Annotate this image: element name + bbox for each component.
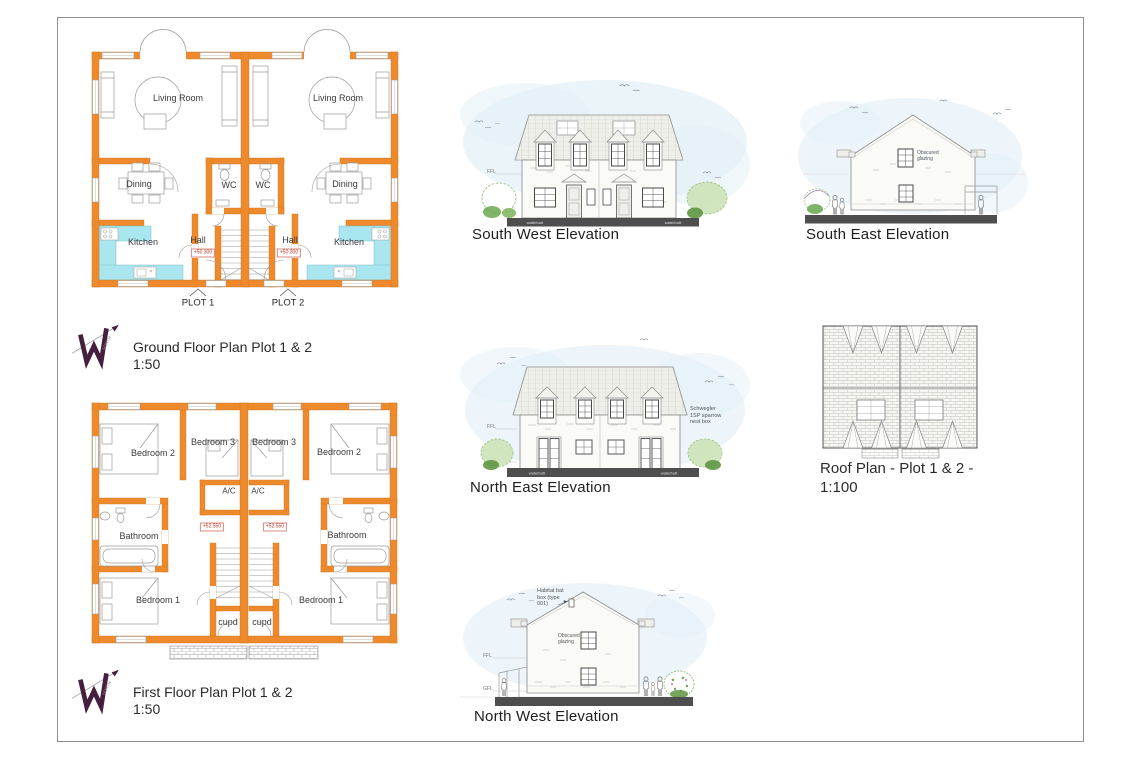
waterbutt-label-left: waterbutt: [527, 220, 544, 225]
bush-right: [664, 671, 694, 698]
north-label: NORTH: [101, 335, 112, 350]
obscured-window-upper: [898, 149, 913, 167]
window-lower: [581, 668, 596, 685]
ground-floor-title: Ground Floor Plan Plot 1 & 2: [133, 339, 312, 356]
stairs: [221, 230, 241, 280]
drawing-sheet-page: { "colors": { "wall_orange": "#EF8A2C", …: [0, 0, 1140, 760]
note-sparrow-nest-box: Schwegler 1SP sparrow nest box: [690, 406, 721, 426]
terrace-paving-left: [170, 646, 247, 659]
room-label-dining-left: Dining: [126, 179, 152, 189]
room-label-kitchen-right: Kitchen: [334, 237, 364, 247]
room-label-wc-right: WC: [256, 180, 271, 190]
note-obscured-glazing-nw: Obscured glazing: [558, 634, 580, 645]
plot-chevrons: [190, 289, 296, 296]
room-label-bedroom1-right: Bedroom 1: [299, 595, 343, 605]
first-floor-scale: 1:50: [133, 701, 293, 718]
room-label-bathroom-left: Bathroom: [119, 531, 158, 541]
room-label-living-left: Living Room: [153, 93, 203, 103]
caption-north-west-elevation: North West Elevation: [474, 708, 619, 725]
note-habitat-bat-box: Habitat bat box (type 001): [537, 588, 564, 608]
caption-north-east-elevation: North East Elevation: [470, 479, 611, 496]
room-label-bedroom2-right: Bedroom 2: [317, 447, 361, 457]
north-west-elevation-drawing: FFL GFL: [455, 570, 720, 722]
bush-left: [804, 189, 830, 214]
terrace-paving-right: [249, 646, 318, 659]
bush-left: [481, 439, 513, 470]
person-figure: [651, 682, 655, 695]
stairs: [216, 548, 240, 598]
room-label-bedroom1-left: Bedroom 1: [136, 595, 180, 605]
caption-south-east-elevation: South East Elevation: [806, 226, 949, 243]
obscured-window-upper: [581, 632, 596, 649]
room-label-living-right: Living Room: [313, 93, 363, 103]
north-arrow-logo-first: NORTH: [70, 663, 122, 715]
level-badge-ff-right: +52.550: [263, 523, 287, 532]
north-arrow-logo-ground: NORTH: [70, 318, 122, 370]
waterbutt-label-right: waterbutt: [665, 220, 682, 225]
room-label-ac-right: A/C: [251, 487, 264, 496]
room-label-hall-left: Hall: [190, 235, 206, 245]
canopy-left: [862, 449, 898, 458]
room-label-kitchen-left: Kitchen: [128, 237, 158, 247]
bush-left: [482, 183, 516, 218]
gfl-label: GFL: [483, 686, 493, 692]
ground-floor-scale: 1:50: [133, 356, 312, 373]
level-badge-ff-left: +52.550: [200, 523, 224, 532]
room-label-bathroom-right: Bathroom: [327, 530, 366, 540]
ground-bar: [805, 215, 997, 224]
room-label-hall-right: Hall: [282, 235, 298, 245]
caption-south-west-elevation: South West Elevation: [472, 226, 619, 243]
window-lower: [899, 185, 913, 202]
kitchen-counter: [99, 226, 183, 280]
ffl-label: FFL: [487, 169, 496, 175]
roof-plan-titleblock: Roof Plan - Plot 1 & 2 - 1:100: [820, 459, 973, 497]
ground-floor-titleblock: Ground Floor Plan Plot 1 & 2 1:50: [133, 339, 312, 373]
person-figure: [501, 679, 506, 696]
note-obscured-glazing-se: Obscured glazing: [917, 151, 939, 162]
first-floor-title: First Floor Plan Plot 1 & 2: [133, 684, 293, 701]
bush-right: [687, 182, 727, 219]
room-label-cupd-left: cupd: [218, 617, 238, 627]
room-label-bedroom3-right: Bedroom 3: [252, 437, 296, 447]
south-east-elevation-drawing: [795, 88, 1030, 238]
level-badge-gf-left: +50.300: [191, 249, 215, 258]
roof-plan-scale: 1:100: [820, 478, 973, 497]
ffl-label: FFL: [483, 653, 492, 659]
canopy-right: [902, 449, 939, 458]
north-label: NORTH: [101, 680, 112, 695]
ground-bar: [495, 697, 693, 706]
room-label-bedroom3-left: Bedroom 3: [191, 437, 235, 447]
room-label-dining-right: Dining: [332, 179, 358, 189]
waterbutt-label-right: waterbutt: [661, 470, 678, 475]
ffl-label: FFL: [487, 424, 496, 430]
room-label-ac-left: A/C: [222, 487, 235, 496]
first-floor-titleblock: First Floor Plan Plot 1 & 2 1:50: [133, 684, 293, 718]
level-badge-gf-right: +50.300: [277, 249, 301, 258]
plot-1-label: PLOT 1: [182, 298, 215, 309]
room-label-wc-left: WC: [222, 180, 237, 190]
roof-plan-drawing: [818, 322, 993, 467]
roof-plan-title: Roof Plan - Plot 1 & 2 -: [820, 459, 973, 478]
bush-right: [688, 439, 722, 470]
room-label-bedroom2-left: Bedroom 2: [131, 448, 175, 458]
waterbutt-label-left: waterbutt: [529, 470, 546, 475]
room-label-cupd-right: cupd: [252, 617, 272, 627]
plot-2-label: PLOT 2: [272, 298, 305, 309]
south-west-elevation-drawing: FFL GFL waterbutt waterbutt: [455, 70, 750, 240]
ground-floor-plan-drawing: [88, 28, 410, 316]
